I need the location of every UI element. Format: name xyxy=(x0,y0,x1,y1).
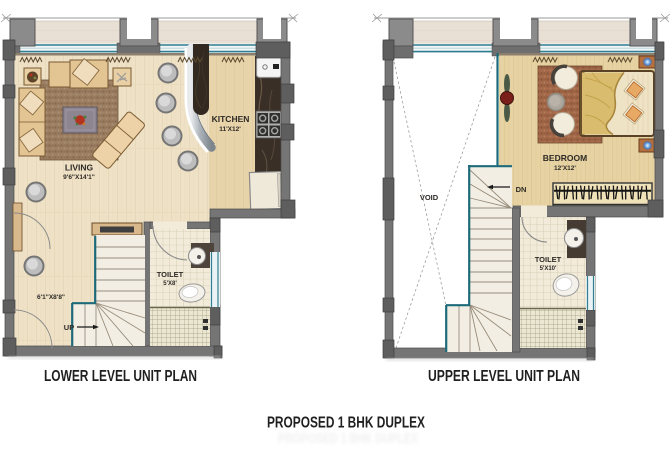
svg-text:LIVING: LIVING xyxy=(65,163,94,173)
svg-text:LOWER LEVEL UNIT PLAN: LOWER LEVEL UNIT PLAN xyxy=(44,368,197,385)
svg-text:DN: DN xyxy=(516,185,527,194)
svg-text:6'1"X8'8": 6'1"X8'8" xyxy=(37,294,65,301)
svg-text:KITCHEN: KITCHEN xyxy=(212,114,250,124)
svg-text:UP: UP xyxy=(64,323,74,332)
svg-text:VOID: VOID xyxy=(420,193,439,202)
svg-text:5'X8': 5'X8' xyxy=(163,281,177,287)
svg-text:TOILET: TOILET xyxy=(535,255,562,264)
svg-text:TOILET: TOILET xyxy=(157,270,184,279)
svg-text:9'6"X14'1": 9'6"X14'1" xyxy=(63,174,95,181)
svg-text:12'X12': 12'X12' xyxy=(554,165,576,172)
svg-text:BEDROOM: BEDROOM xyxy=(543,153,587,163)
svg-text:5'X10': 5'X10' xyxy=(540,266,557,272)
svg-text:PROPOSED 1 BHK DUPLEX: PROPOSED 1 BHK DUPLEX xyxy=(278,430,418,447)
svg-text:UPPER LEVEL UNIT PLAN: UPPER LEVEL UNIT PLAN xyxy=(428,368,580,385)
svg-text:PROPOSED 1 BHK DUPLEX: PROPOSED 1 BHK DUPLEX xyxy=(267,415,425,432)
svg-text:11'X12': 11'X12' xyxy=(219,126,241,133)
